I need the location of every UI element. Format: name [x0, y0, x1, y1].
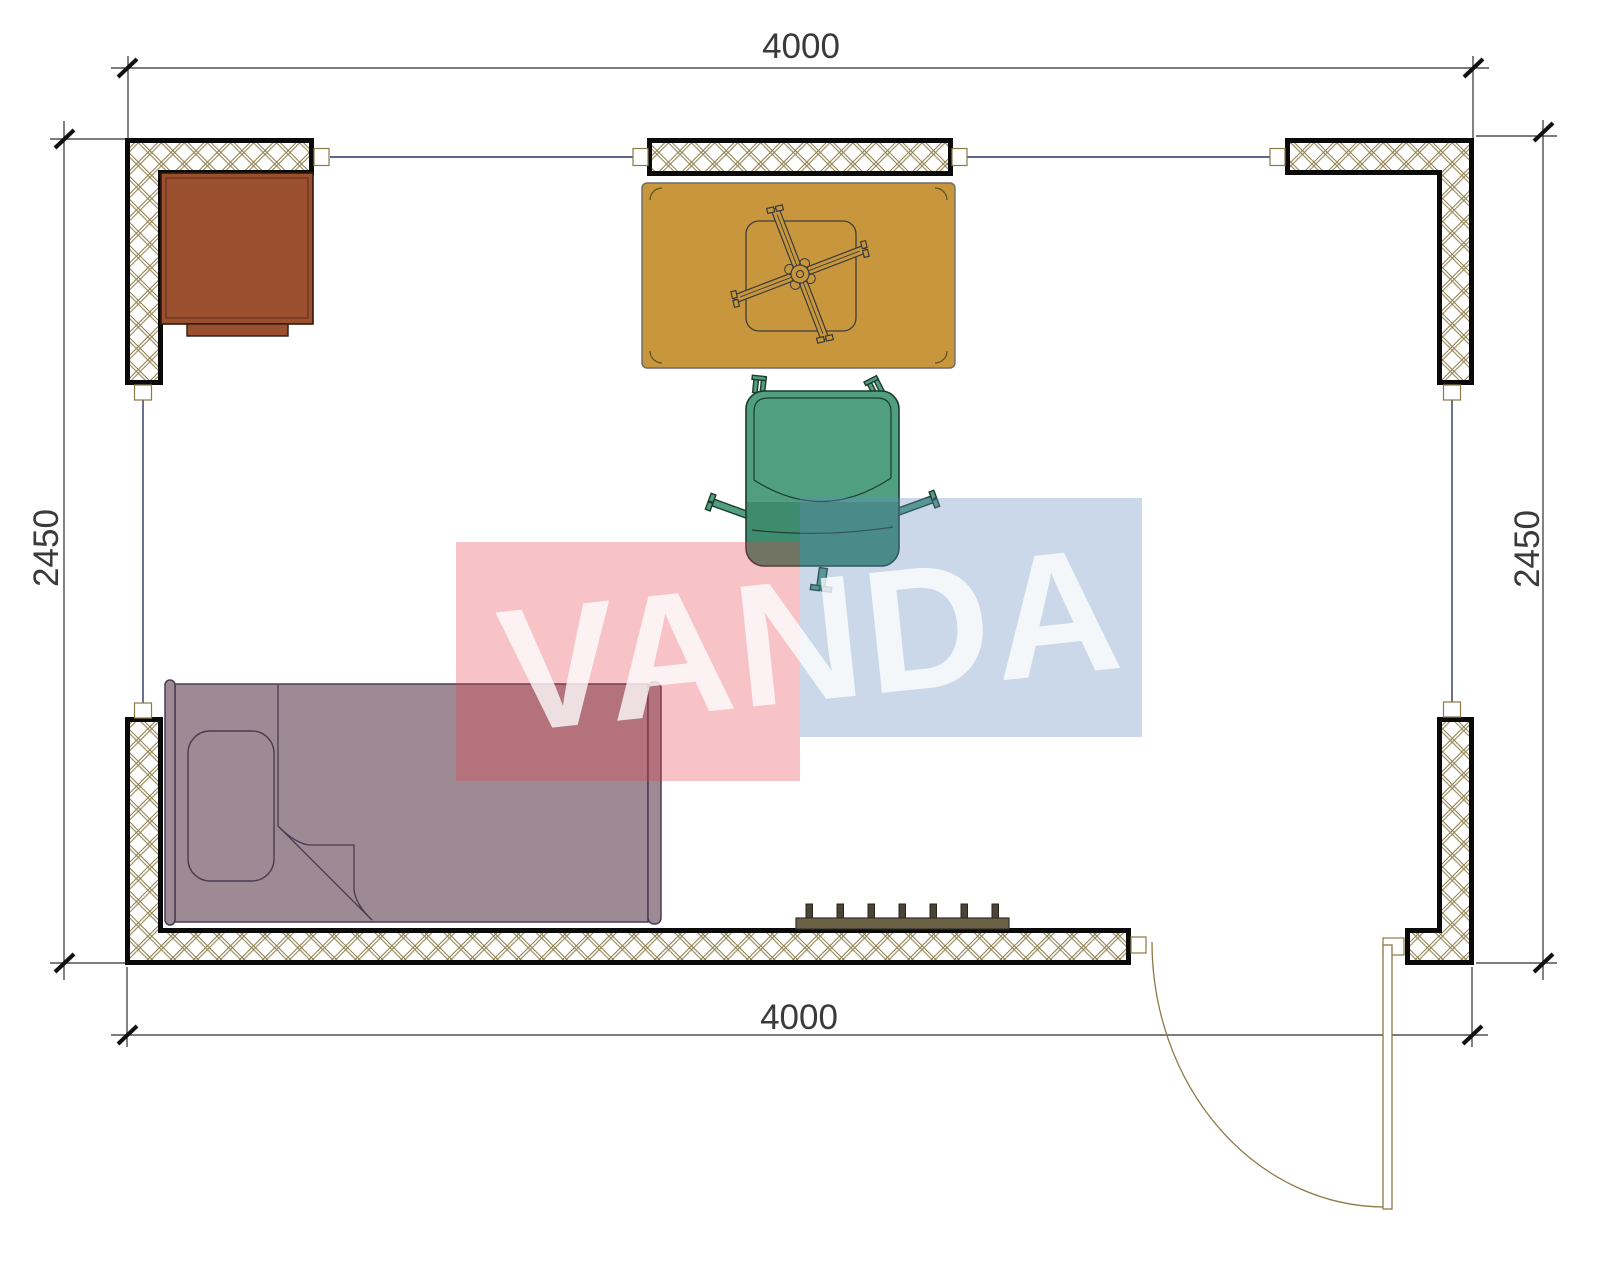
svg-text:4000: 4000	[760, 998, 838, 1037]
svg-text:4000: 4000	[762, 27, 840, 66]
svg-text:2450: 2450	[1508, 510, 1547, 588]
svg-text:2450: 2450	[27, 509, 66, 587]
